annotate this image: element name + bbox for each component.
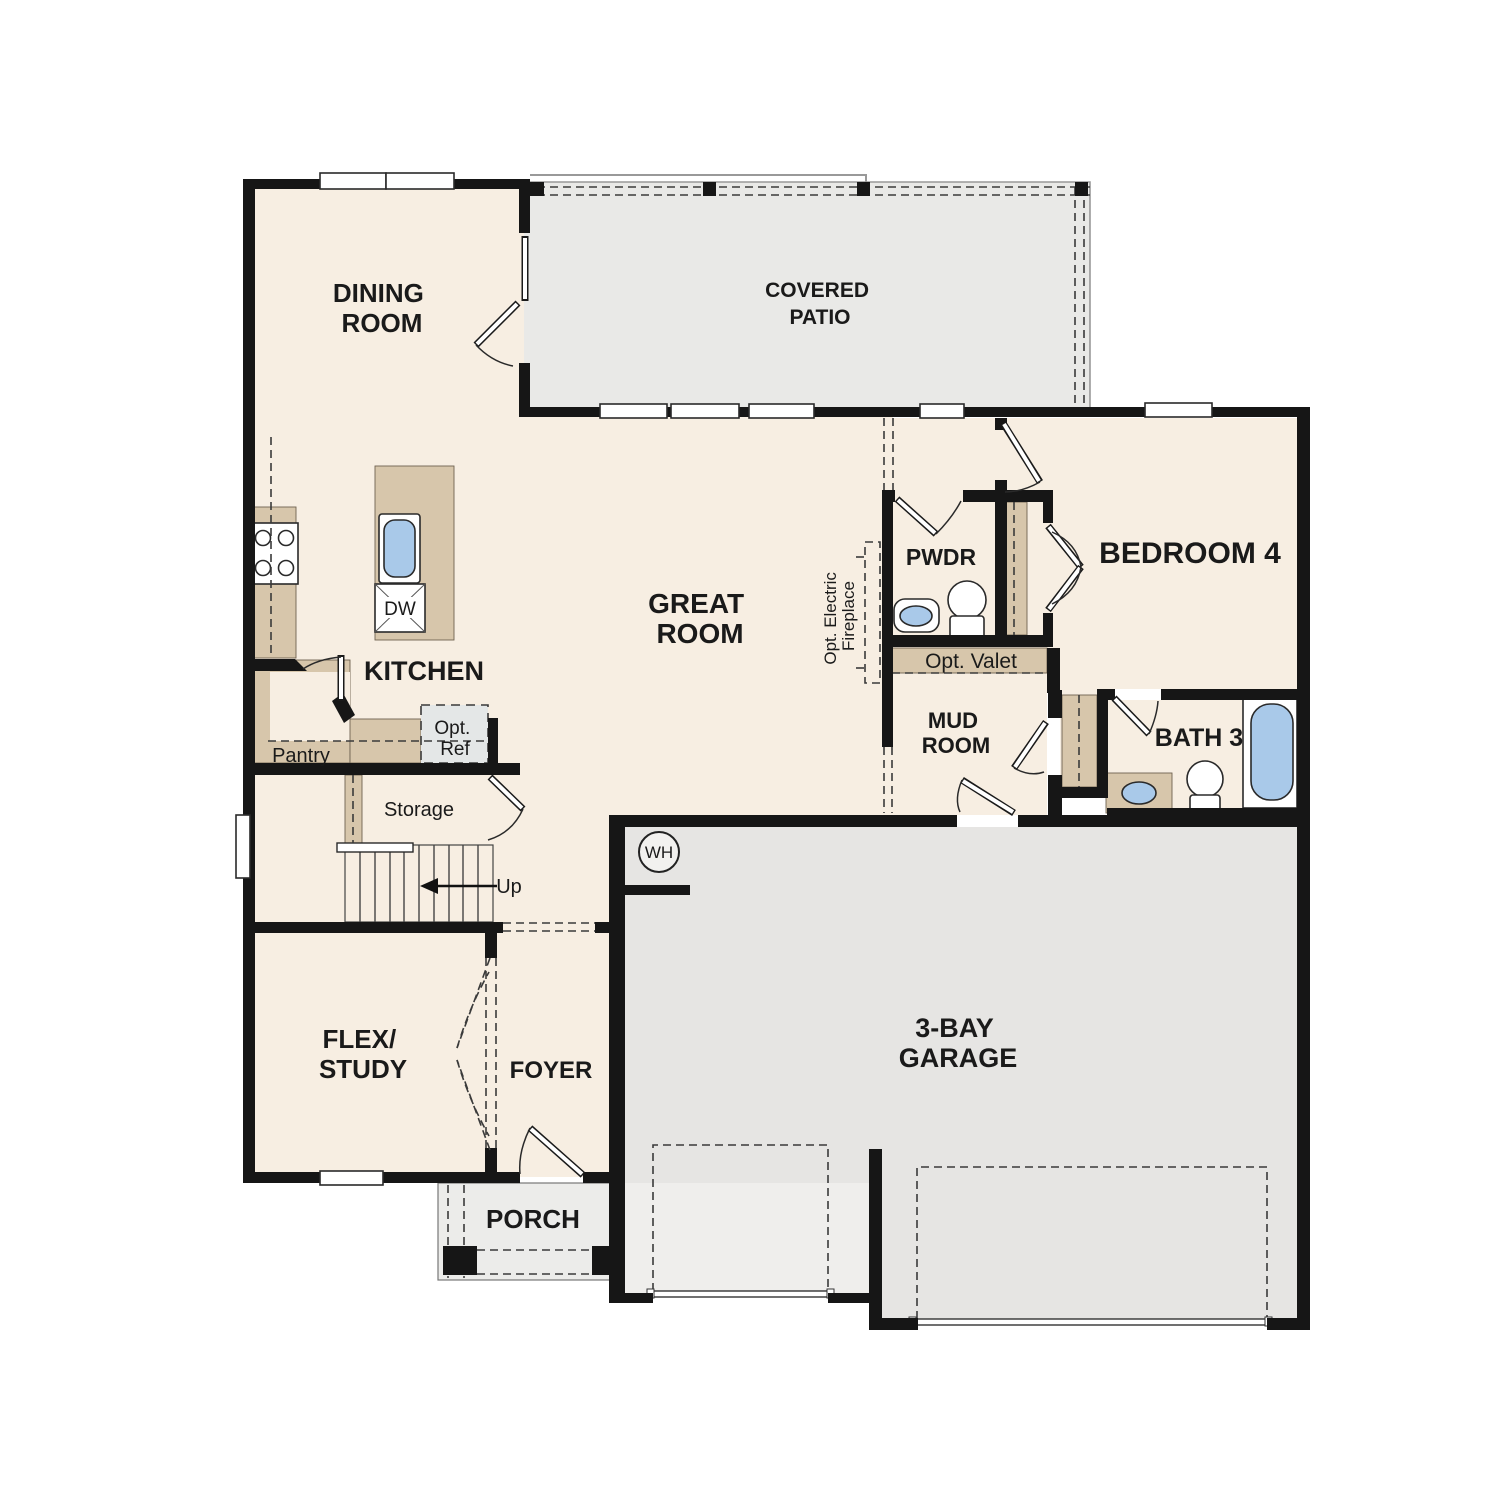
stair-landing-edge xyxy=(337,843,413,852)
room-label-bath3: BATH 3 xyxy=(1155,724,1243,752)
room-label-porch: PORCH xyxy=(486,1204,580,1234)
window xyxy=(920,404,964,418)
label-pantry: Pantry xyxy=(272,745,330,767)
window xyxy=(320,173,386,189)
room-label-mud-room: MUD ROOM xyxy=(922,708,990,758)
window xyxy=(749,404,814,418)
patio-post xyxy=(857,182,870,196)
patio-post xyxy=(530,182,544,196)
label-up: Up xyxy=(496,876,522,898)
bath3-toilet xyxy=(1187,761,1223,815)
window xyxy=(236,815,250,878)
floor-plan-page: DINING ROOM COVERED PATIO GREAT ROOM KIT… xyxy=(0,0,1500,1500)
room-label-dining: DINING ROOM xyxy=(333,278,431,338)
garage-door-single xyxy=(650,1291,831,1297)
window xyxy=(671,404,739,418)
porch-post xyxy=(443,1246,477,1275)
room-label-pwdr: PWDR xyxy=(906,544,977,570)
room-label-garage: 3-BAY GARAGE xyxy=(899,1013,1018,1073)
cooktop xyxy=(251,523,298,584)
bath3-tub xyxy=(1243,697,1297,808)
window xyxy=(1145,403,1212,417)
bath3-sink xyxy=(1122,782,1156,804)
room-label-foyer: FOYER xyxy=(510,1057,593,1084)
floor-plan-drawing: DINING ROOM COVERED PATIO GREAT ROOM KIT… xyxy=(0,0,1500,1500)
staircase xyxy=(337,843,497,922)
label-dw: DW xyxy=(384,599,416,620)
label-wh: WH xyxy=(645,843,673,862)
garage-bay1-apron xyxy=(625,1183,869,1295)
island-sink xyxy=(379,514,420,583)
room-label-kitchen: KITCHEN xyxy=(364,656,484,686)
patio-post xyxy=(1075,182,1088,196)
patio-post xyxy=(703,182,716,196)
label-storage: Storage xyxy=(384,799,454,821)
label-opt-fireplace: Opt. Electric Fireplace xyxy=(821,567,858,664)
room-label-flex: FLEX/ STUDY xyxy=(319,1024,407,1084)
pwdr-toilet xyxy=(948,581,986,640)
garage-bay23-floor xyxy=(882,1295,1297,1322)
window xyxy=(600,404,667,418)
window xyxy=(320,1171,383,1185)
label-opt-valet: Opt. Valet xyxy=(925,650,1017,673)
room-label-bedroom4: BEDROOM 4 xyxy=(1099,537,1281,570)
window xyxy=(386,173,454,189)
room-label-great-room: GREAT ROOM xyxy=(648,588,752,649)
garage-door-double xyxy=(912,1319,1272,1325)
label-opt-ref: Opt. Ref xyxy=(434,718,475,760)
pwdr-sink xyxy=(894,599,939,632)
